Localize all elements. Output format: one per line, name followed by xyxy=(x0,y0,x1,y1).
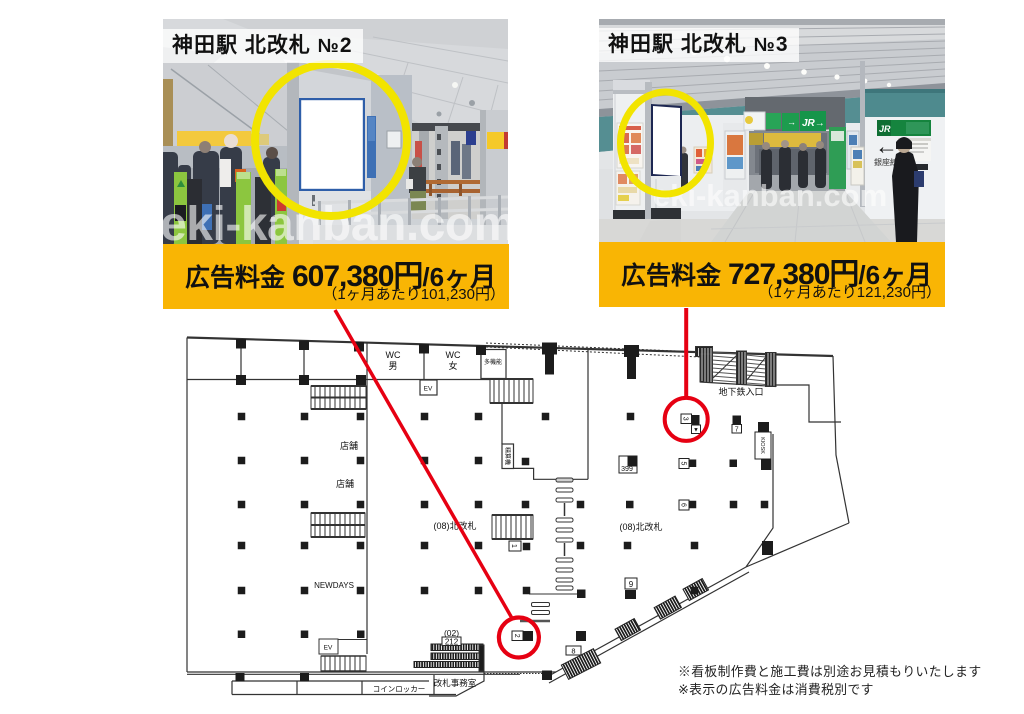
svg-text:店舗: 店舗 xyxy=(340,440,358,451)
svg-text:(08)北改札: (08)北改札 xyxy=(433,520,476,531)
svg-text:コインロッカー: コインロッカー xyxy=(373,685,426,694)
svg-text:1: 1 xyxy=(510,544,517,548)
svg-text:212: 212 xyxy=(445,637,459,646)
svg-text:2: 2 xyxy=(513,634,520,638)
svg-text:3: 3 xyxy=(682,417,689,421)
svg-text:5: 5 xyxy=(680,462,687,466)
svg-text:多機能: 多機能 xyxy=(484,358,502,366)
svg-text:女: 女 xyxy=(448,360,457,371)
svg-text:▼: ▼ xyxy=(693,428,699,434)
svg-text:男: 男 xyxy=(388,361,397,371)
svg-text:eki-kanban.com: eki-kanban.com xyxy=(163,198,508,244)
svg-text:9: 9 xyxy=(629,580,634,589)
svg-text:店舗: 店舗 xyxy=(336,478,354,489)
svg-text:EV: EV xyxy=(324,645,333,652)
svg-text:精算機: 精算機 xyxy=(504,447,512,465)
svg-text:8: 8 xyxy=(571,647,575,656)
svg-text:KIOSK: KIOSK xyxy=(759,437,765,454)
svg-text:6: 6 xyxy=(680,503,687,507)
svg-text:→: → xyxy=(787,117,796,127)
svg-text:JR→: JR→ xyxy=(802,118,825,129)
svg-text:WC: WC xyxy=(446,350,461,360)
svg-text:7: 7 xyxy=(735,427,739,434)
svg-text:EV: EV xyxy=(424,386,433,393)
svg-text:WC: WC xyxy=(386,350,401,360)
svg-text:←: ← xyxy=(875,133,898,159)
svg-text:(08)北改札: (08)北改札 xyxy=(619,521,662,532)
svg-text:399: 399 xyxy=(621,466,633,473)
svg-text:改札事務室: 改札事務室 xyxy=(434,678,477,688)
svg-text:地下鉄入口: 地下鉄入口 xyxy=(718,386,763,397)
svg-text:(02): (02) xyxy=(444,628,459,638)
svg-text:NEWDAYS: NEWDAYS xyxy=(314,581,354,590)
